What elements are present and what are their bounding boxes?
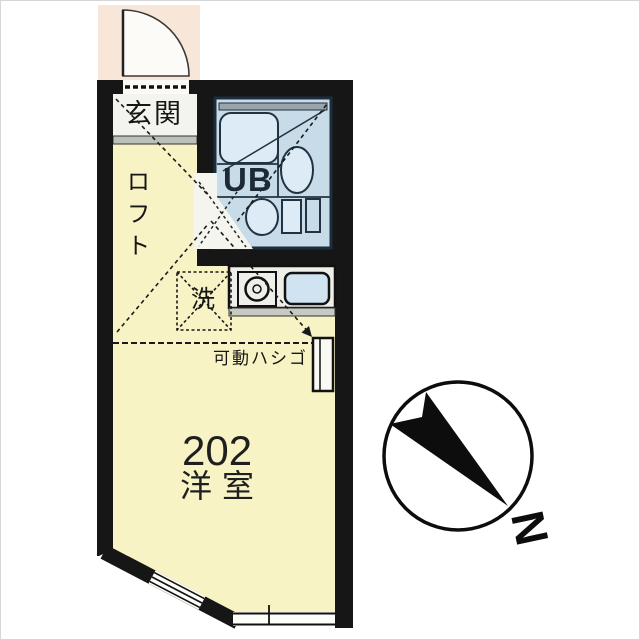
washbasin-icon [281, 147, 313, 193]
ladder-icon [313, 338, 333, 391]
kitchen-counter [229, 266, 335, 316]
compass-icon: N [384, 382, 559, 550]
unit-number: 202 [182, 430, 252, 472]
floor-plan: N 玄関 ロフト UB 洗 可動ハシゴ 202 洋室 [0, 0, 640, 640]
compass-north-label: N [501, 506, 559, 549]
entrance-threshold [123, 80, 189, 94]
compass-needle [390, 392, 508, 506]
movable-ladder-label: 可動ハシゴ [213, 350, 308, 367]
room-type-label: 洋室 [180, 470, 264, 502]
bath-shelf [219, 103, 327, 110]
floor-plan-drawing: N [1, 1, 640, 640]
washing-machine-label: 洗 [191, 288, 215, 312]
loft-label: ロフト [123, 169, 147, 265]
unit-bath-label: UB [223, 163, 273, 196]
kitchen-sink-icon [285, 273, 329, 304]
entrance-label: 玄関 [125, 101, 183, 128]
